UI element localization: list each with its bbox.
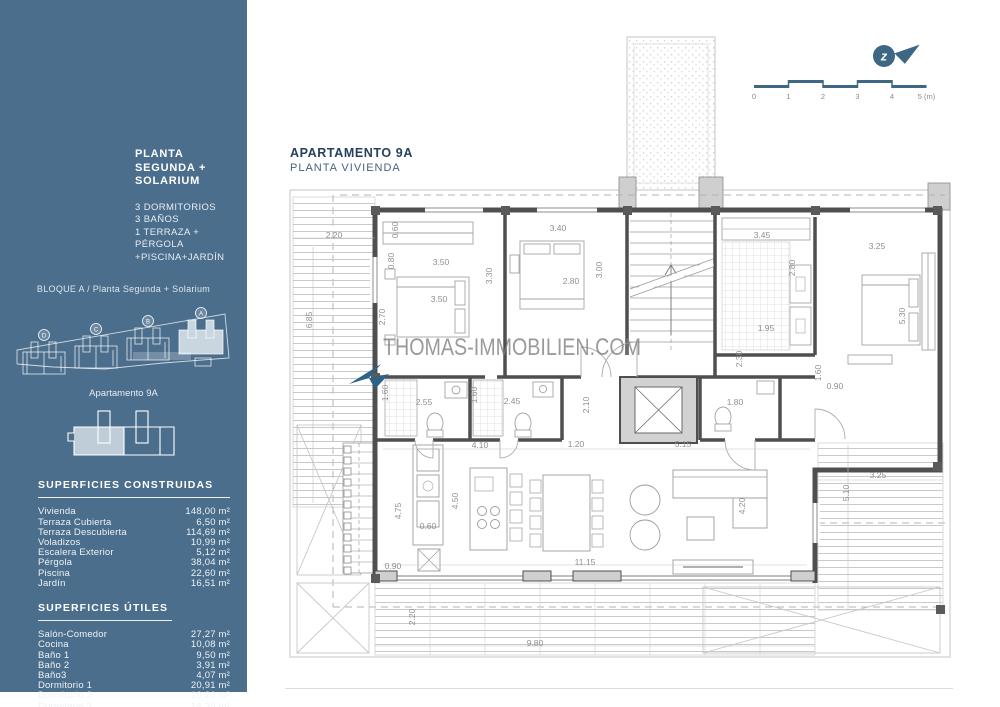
feature-line: 3 BAÑOS — [135, 214, 237, 227]
feature-line: 3 DORMITORIOS — [135, 202, 237, 215]
dimension-label: 1.80 — [727, 397, 744, 407]
dimension-label: 5.15 — [675, 439, 692, 449]
surface-label: Dormitorio 3 — [38, 702, 92, 707]
dimension-label: 1.95 — [758, 323, 775, 333]
dimension-label: 1.20 — [568, 439, 585, 449]
dimension-label: 3.25 — [869, 241, 886, 251]
block-letter: D — [41, 334, 46, 340]
feature-line: +PISCINA+JARDÍN — [135, 252, 237, 265]
block-letter: C — [93, 328, 98, 334]
dimension-label: 0.60 — [390, 221, 400, 238]
surface-row: Dormitorio 314,35 m² — [38, 702, 230, 707]
dimension-label: 2.80 — [787, 259, 797, 276]
brochure-page: PLANTA SEGUNDA + SOLARIUM 3 DORMITORIOS3… — [0, 0, 1000, 707]
wc — [715, 381, 774, 431]
dimension-label: 3.50 — [431, 294, 448, 304]
constructed-heading: SUPERFICIES CONSTRUIDAS — [38, 479, 230, 498]
surfaces-useful-section: SUPERFICIES ÚTILES Salón-Comedor27,27 m²… — [38, 598, 230, 707]
living-area — [630, 470, 767, 574]
dimension-label: 2.20 — [326, 230, 343, 240]
kitchen — [413, 445, 522, 571]
block-letter: B — [145, 320, 149, 326]
apartment-caption: Apartamento 9A — [0, 388, 247, 399]
plan-title-line2: SOLARIUM — [135, 175, 237, 189]
building-a-highlighted — [179, 320, 223, 354]
block-caption: BLOQUE A / Planta Segunda + Solarium — [0, 284, 247, 294]
surface-label: Cocina — [38, 640, 69, 650]
dimension-label: 5.10 — [841, 484, 851, 501]
surface-value: 10,20 m² — [191, 691, 230, 701]
dimension-label: 3.25 — [870, 470, 887, 480]
light-well — [619, 37, 950, 210]
dimension-label: 4.50 — [450, 492, 460, 509]
plan-title-line1: PLANTA SEGUNDA + — [135, 148, 237, 175]
dimension-label: 0.90 — [385, 561, 402, 571]
useful-heading: SUPERFICIES ÚTILES — [38, 602, 172, 621]
page-footer-rule — [285, 688, 953, 689]
dimension-label: 2.30 — [734, 350, 744, 367]
dimension-label: 3.45 — [754, 230, 771, 240]
surfaces-constructed-section: SUPERFICIES CONSTRUIDAS Vivienda148,00 m… — [38, 479, 230, 589]
watermark-text: THOMAS-IMMOBILIEN.COM — [383, 334, 641, 362]
surface-label: Jardín — [38, 579, 66, 589]
bedroom-1-furniture — [848, 253, 935, 364]
watermark: THOMAS-IMMOBILIEN.COM — [383, 334, 698, 392]
surface-label: Dormitorio 2 — [38, 691, 92, 701]
plan-title: PLANTA SEGUNDA + SOLARIUM — [135, 148, 237, 189]
surface-row: Cocina10,08 m² — [38, 640, 230, 650]
bedroom-3-furniture — [510, 241, 584, 309]
building-d — [23, 342, 65, 374]
surface-value: 10,08 m² — [191, 640, 230, 650]
bedroom-2-furniture — [383, 222, 473, 345]
feature-list: 3 DORMITORIOS3 BAÑOS1 TERRAZA + PÉRGOLA+… — [135, 202, 237, 265]
dimension-label: 0.90 — [827, 381, 844, 391]
surface-row: Dormitorio 210,20 m² — [38, 691, 230, 701]
surface-row: Jardín16,51 m² — [38, 579, 230, 589]
block-letter: A — [198, 312, 202, 318]
dimension-label: 9.80 — [527, 638, 544, 648]
dimension-label: 4.10 — [472, 440, 489, 450]
exterior-stair — [343, 443, 375, 574]
dimension-label: 0.60 — [420, 521, 437, 531]
dimension-label: 2.55 — [416, 397, 433, 407]
dimension-label: 2.20 — [407, 608, 417, 625]
dimension-label: 3.30 — [484, 267, 494, 284]
dimension-label: 2.10 — [581, 396, 591, 413]
dimension-label: 2.45 — [504, 396, 521, 406]
pool-strip — [133, 352, 191, 360]
dimension-label: 2.70 — [377, 308, 387, 325]
brand-bird-icon — [347, 362, 391, 392]
dimension-label: 6.85 — [304, 311, 314, 328]
dimension-label: 3.40 — [550, 223, 567, 233]
dimension-label: 3.50 — [433, 257, 450, 267]
dimension-label: 2.80 — [563, 276, 580, 286]
surface-value: 16,51 m² — [191, 579, 230, 589]
dimension-label: 11.15 — [575, 557, 596, 567]
dimension-label: 3.00 — [594, 261, 604, 278]
dimension-label: 4.20 — [737, 497, 747, 514]
useful-rows: Salón-Comedor27,27 m²Cocina10,08 m²Baño … — [38, 630, 230, 707]
apartment-plan-icon — [64, 407, 184, 461]
constructed-rows: Vivienda148,00 m²Terraza Cubierta6,50 m²… — [38, 507, 230, 589]
dimension-label: 5.30 — [897, 307, 907, 324]
staircase — [630, 213, 713, 351]
sidebar-header: PLANTA SEGUNDA + SOLARIUM 3 DORMITORIOS3… — [0, 0, 247, 264]
sidebar: PLANTA SEGUNDA + SOLARIUM 3 DORMITORIOS3… — [0, 0, 247, 692]
dimension-label: 0.80 — [386, 252, 396, 269]
feature-line: 1 TERRAZA + PÉRGOLA — [135, 227, 237, 252]
surface-value: 14,35 m² — [191, 702, 230, 707]
dimension-label: 4.75 — [393, 502, 403, 519]
dimension-label: 1.60 — [813, 364, 823, 381]
block-illustration: D C B A — [13, 300, 235, 382]
dining-area — [530, 475, 603, 551]
building-c — [75, 336, 117, 368]
